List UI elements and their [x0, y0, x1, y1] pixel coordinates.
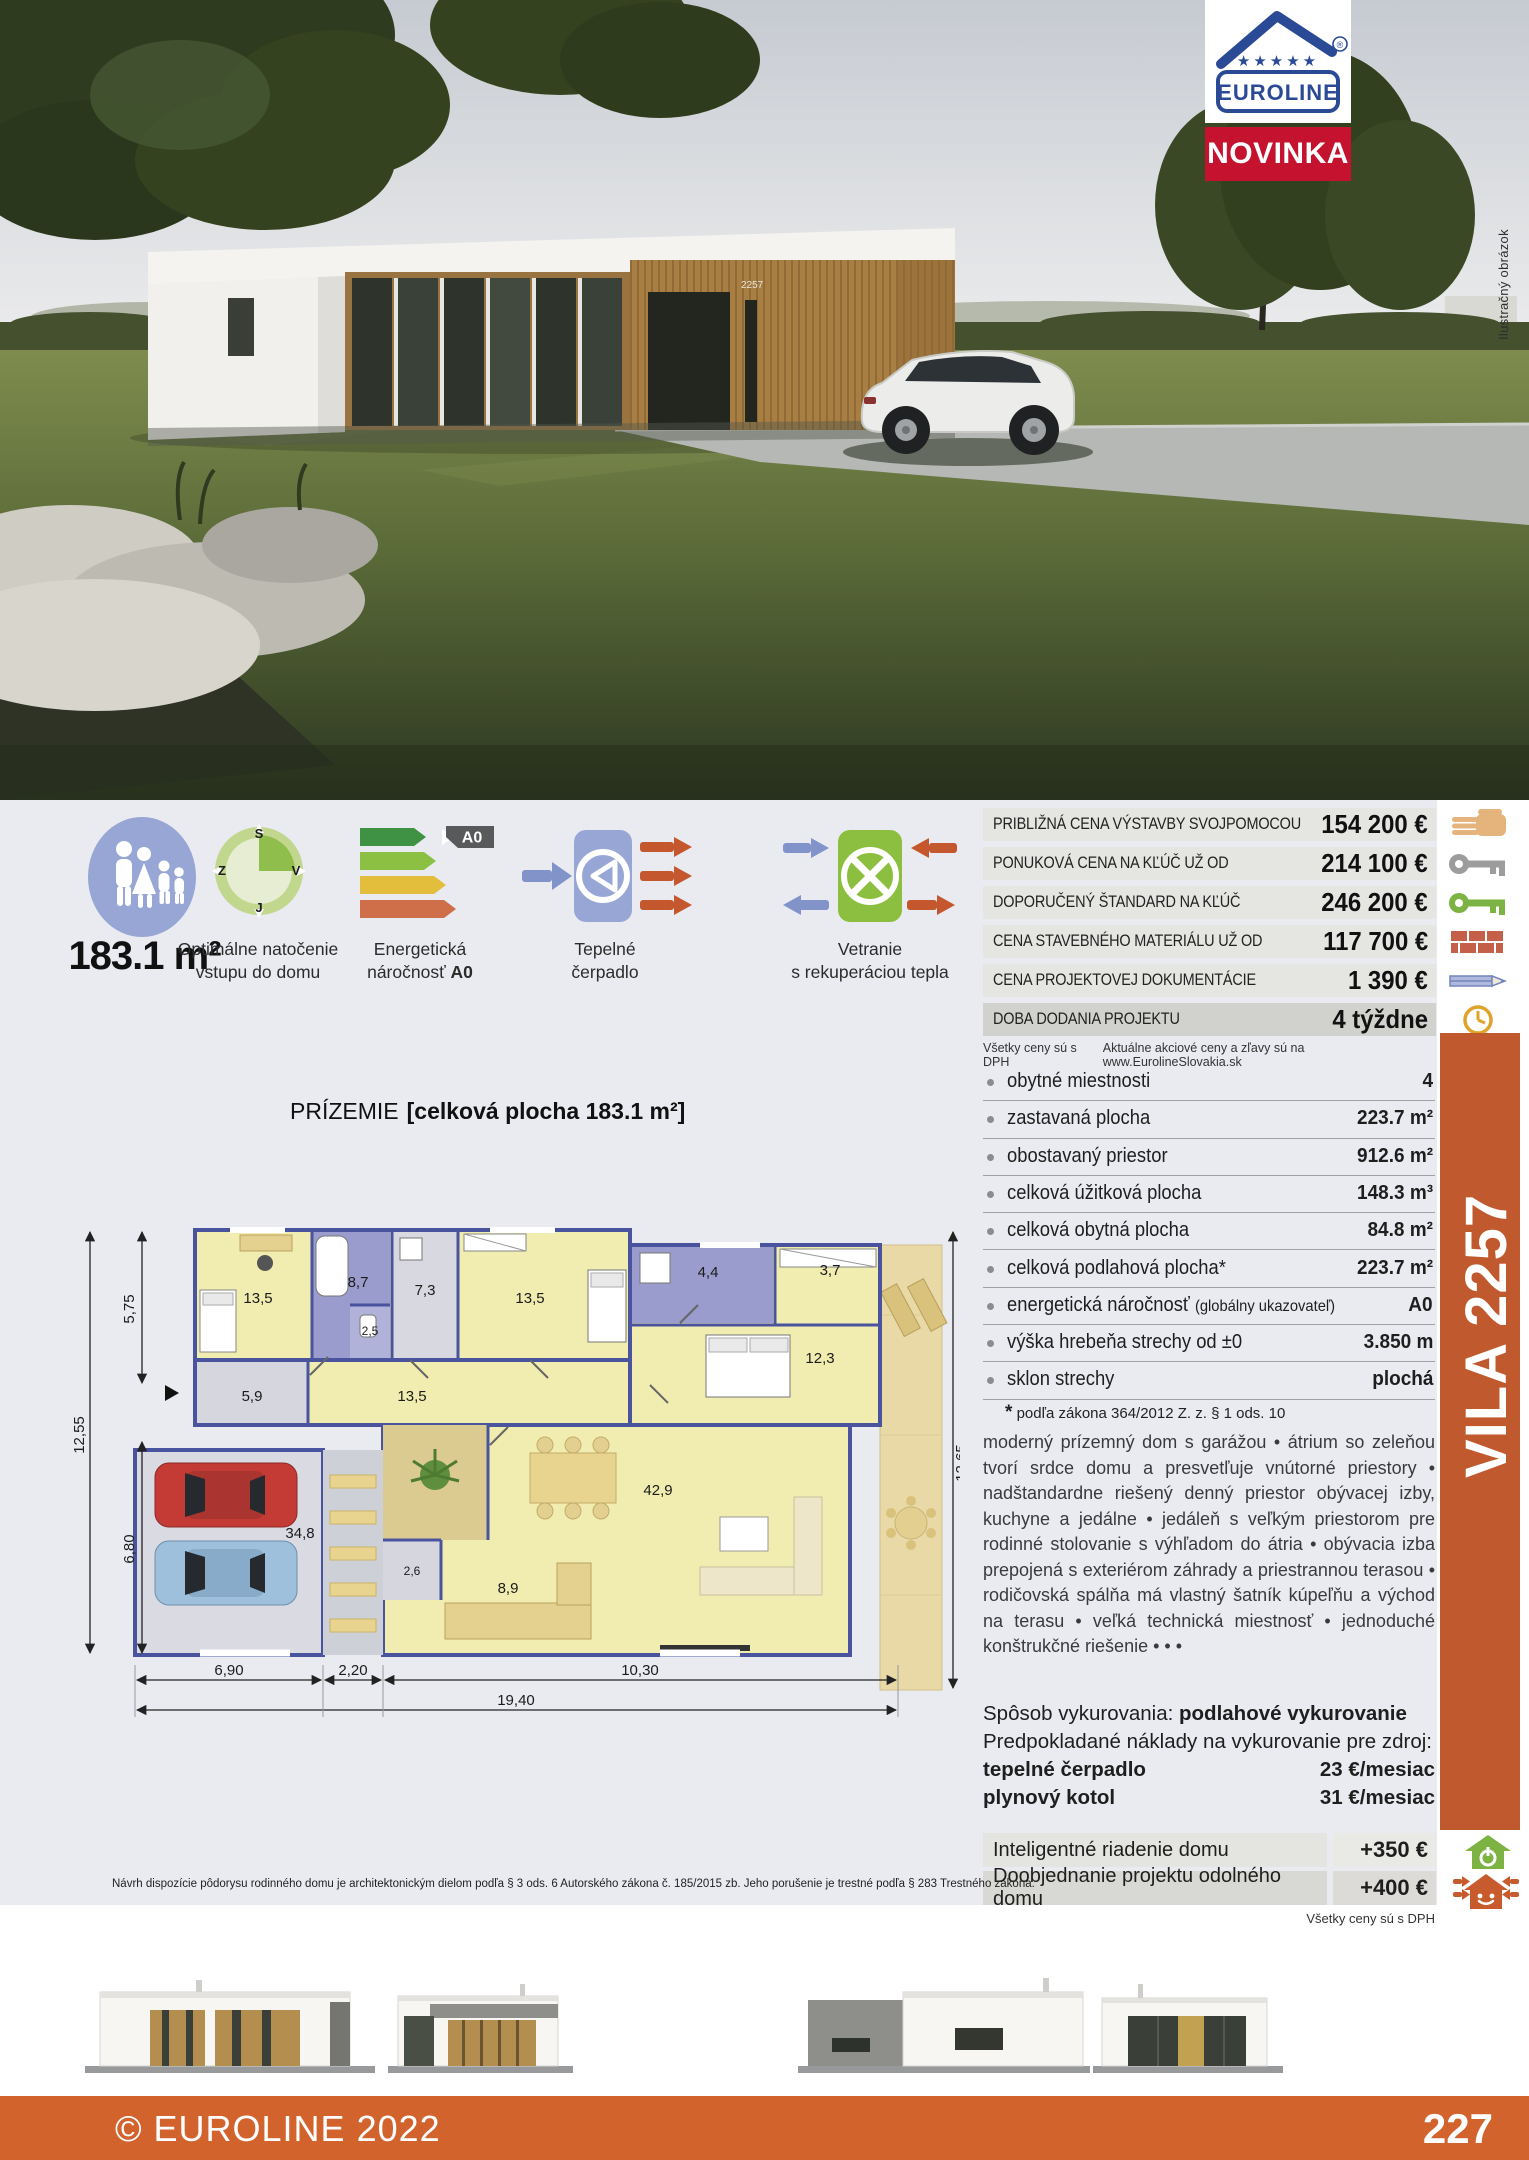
euroline-logo: ★★★★★ ® EUROLINE [1205, 0, 1351, 123]
spec-row: celková úžitková plocha 148.3 m³ [983, 1176, 1435, 1213]
floor-plan: 13,5 8,7 7,3 13,5 2,5 5,9 13,5 4,4 3,7 1… [60, 1135, 960, 1735]
ventilation-label: Vetranie s rekuperáciou tepla [770, 938, 970, 984]
spec-row: celková obytná plocha 84.8 m² [983, 1213, 1435, 1250]
smart-home-icon [1464, 1834, 1512, 1870]
footer-bar: © EUROLINE 2022 227 [0, 2096, 1529, 2160]
pencil-icon [1448, 964, 1508, 998]
dim-label: 19,40 [497, 1692, 535, 1709]
price-row: CENA PROJEKTOVEJ DOKUMENTÁCIE 1 390 € [983, 964, 1436, 997]
terrace [880, 1245, 947, 1690]
bullet-icon [987, 1266, 994, 1273]
room-area-label: 13,5 [515, 1290, 544, 1307]
price-value: 154 200 € [1322, 809, 1428, 840]
orientation-label: Optimálne natočenie vstupu do domu [168, 938, 348, 984]
room-area-label: 4,4 [698, 1264, 719, 1281]
energy-label: Energetická náročnosť A0 [335, 938, 505, 984]
heat-pump-icon [520, 826, 700, 926]
bullet-icon [987, 1154, 994, 1161]
ventilation-icon [775, 826, 965, 926]
registered-icon: ® [1337, 40, 1344, 50]
dim-label: 2,20 [338, 1662, 367, 1679]
room-area-label: 13,5 [243, 1290, 272, 1307]
key-gray-icon [1448, 847, 1508, 881]
hand-icon [1448, 808, 1508, 842]
price-row: PRIBLIŽNÁ CENA VÝSTAVBY SVOJPOMOCOU 154 … [983, 808, 1436, 841]
addon-value: +350 € [1333, 1833, 1436, 1867]
dim-label: 5,75 [121, 1294, 138, 1323]
compass-w: Z [218, 863, 226, 878]
house-number: 2257 [741, 280, 764, 291]
dim-label: 10,30 [621, 1662, 659, 1679]
family-icon [86, 816, 198, 938]
logo-text: EUROLINE [1217, 80, 1339, 105]
spec-label: sklon strechy [1007, 1368, 1114, 1391]
legal-note: Návrh dispozície pôdorysu rodinného domu… [112, 1878, 1002, 1890]
logo-stars: ★★★★★ [1237, 53, 1319, 70]
spec-value: plochá [1372, 1368, 1433, 1391]
spec-value: 223.7 m² [1357, 1257, 1433, 1280]
plan-title: PRÍZEMIE[celková plocha 183.1 m²] [290, 1098, 685, 1125]
dim-label: 6,80 [121, 1534, 138, 1563]
photo-caption: Ilustračný obrázok [1496, 229, 1511, 340]
spec-row: obostavaný priestor 912.6 m² [983, 1139, 1435, 1176]
entrance-arrow [165, 1385, 179, 1401]
elevation-front-b [1093, 1984, 1283, 2073]
bullet-icon [987, 1079, 994, 1086]
price-value: 4 týždne [1332, 1004, 1428, 1035]
spec-label: výška hrebeňa strechy od ±0 [1007, 1331, 1242, 1354]
heating-source-row: plynový kotol 31 €/mesiac [983, 1786, 1435, 1810]
bullet-icon [987, 1340, 994, 1347]
elevation-side-b [798, 1978, 1090, 2073]
spec-label: celková úžitková plocha [1007, 1182, 1201, 1205]
spec-value: 223.7 m² [1357, 1107, 1433, 1130]
spec-label: energetická náročnosť (globálny ukazovat… [1007, 1294, 1335, 1317]
house: 2257 [148, 228, 955, 446]
addon-value: +400 € [1333, 1871, 1436, 1905]
price-label: DOBA DODANIA PROJEKTU [993, 1009, 1180, 1029]
dim-label: 12,55 [71, 1416, 88, 1454]
room-area-label: 2,6 [404, 1564, 421, 1578]
elevation-side-a [85, 1980, 375, 2073]
spec-label: celková podlahová plocha* [1007, 1257, 1226, 1280]
room-area-label: 42,9 [643, 1482, 672, 1499]
compass-icon: S Z V J [212, 824, 306, 918]
price-label: CENA STAVEBNÉHO MATERIÁLU UŽ OD [993, 931, 1262, 951]
spec-label: zastavaná plocha [1007, 1107, 1150, 1130]
spec-row: obytné miestnosti 4 [983, 1064, 1435, 1101]
heating-source-row: tepelné čerpadlo 23 €/mesiac [983, 1758, 1435, 1782]
price-value: 117 700 € [1323, 926, 1428, 957]
novinka-label: NOVINKA [1207, 137, 1349, 171]
heating-source-label: tepelné čerpadlo [983, 1758, 1146, 1782]
elevation-drawings [0, 1958, 1529, 2090]
model-name: VILA 2257 [1453, 1194, 1520, 1478]
bullet-icon [987, 1303, 994, 1310]
key-green-icon [1448, 886, 1508, 920]
spec-value: 4 [1422, 1070, 1433, 1093]
spec-row: celková podlahová plocha* 223.7 m² [983, 1251, 1435, 1288]
spec-row: zastavaná plocha 223.7 m² [983, 1101, 1435, 1138]
energy-class-icon: A0 [360, 826, 495, 922]
spec-row: energetická náročnosť (globálny ukazovat… [983, 1288, 1435, 1325]
heating-source-value: 31 €/mesiac [1320, 1786, 1435, 1810]
spec-label: obostavaný priestor [1007, 1145, 1168, 1168]
elevation-front-a [388, 1984, 573, 2073]
bullet-icon [987, 1191, 994, 1198]
spec-label: obytné miestnosti [1007, 1070, 1150, 1093]
room-area-label: 3,7 [820, 1262, 841, 1279]
dim-label: 6,90 [214, 1662, 243, 1679]
price-row: DOPORUČENÝ ŠTANDARD NA KĽÚČ 246 200 € [983, 886, 1436, 919]
car-blue [155, 1541, 297, 1605]
room-area-label: 5,9 [242, 1388, 263, 1405]
clock-icon [1448, 1003, 1508, 1037]
footer-page-number: 227 [1423, 2105, 1493, 2153]
footer-copyright: © EUROLINE 2022 [115, 2108, 441, 2150]
compass-s: J [255, 900, 262, 915]
bullet-icon [987, 1228, 994, 1235]
dim-label: 12,65 [953, 1444, 960, 1482]
price-value: 246 200 € [1322, 887, 1428, 918]
price-row: PONUKOVÁ CENA NA KĽÚČ UŽ OD 214 100 € [983, 847, 1436, 880]
addon-label: Inteligentné riadenie domu [983, 1833, 1327, 1867]
addon-vat-note: Všetky ceny sú s DPH [983, 1911, 1435, 1926]
room-area-label: 7,3 [415, 1282, 436, 1299]
price-label: DOPORUČENÝ ŠTANDARD NA KĽÚČ [993, 892, 1240, 912]
price-value: 214 100 € [1322, 848, 1428, 879]
heating-source-label: plynový kotol [983, 1786, 1115, 1810]
spec-value: 3.850 m [1363, 1331, 1433, 1354]
bullet-icon [987, 1116, 994, 1123]
spec-row: výška hrebeňa strechy od ±0 3.850 m [983, 1325, 1435, 1362]
spec-value: 912.6 m² [1357, 1145, 1433, 1168]
bricks-icon [1448, 925, 1508, 959]
room-area-label: 8,7 [348, 1274, 369, 1291]
spec-value: A0 [1409, 1294, 1433, 1317]
price-label: PRIBLIŽNÁ CENA VÝSTAVBY SVOJPOMOCOU [993, 814, 1301, 834]
novinka-badge: NOVINKA [1205, 127, 1351, 181]
compass-n: S [255, 826, 264, 841]
room-area-label: 2,5 [362, 1324, 379, 1338]
resilient-home-icon [1452, 1872, 1520, 1910]
price-label: CENA PROJEKTOVEJ DOKUMENTÁCIE [993, 970, 1256, 990]
heat-pump-label: Tepelné čerpadlo [520, 938, 690, 984]
room-area-label: 34,8 [285, 1525, 314, 1542]
energy-badge: A0 [462, 830, 483, 847]
price-row: CENA STAVEBNÉHO MATERIÁLU UŽ OD 117 700 … [983, 925, 1436, 958]
spec-footnote: * podľa zákona 364/2012 Z. z. § 1 ods. 1… [1005, 1402, 1285, 1424]
price-label: PONUKOVÁ CENA NA KĽÚČ UŽ OD [993, 853, 1229, 873]
heating-source-value: 23 €/mesiac [1320, 1758, 1435, 1782]
catalog-page: 2257 [0, 0, 1529, 2160]
heating-method: Spôsob vykurovania: podlahové vykurovani… [983, 1702, 1435, 1726]
room-area-label: 13,5 [397, 1388, 426, 1405]
room-area-label: 12,3 [805, 1350, 834, 1367]
price-value: 1 390 € [1348, 965, 1428, 996]
spec-value: 148.3 m³ [1357, 1182, 1433, 1205]
price-row: DOBA DODANIA PROJEKTU 4 týždne [983, 1003, 1436, 1036]
bullet-icon [987, 1377, 994, 1384]
heating-costs-label: Predpokladané náklady na vykurovanie pre… [983, 1730, 1435, 1754]
spec-row: sklon strechy plochá [983, 1362, 1435, 1399]
car-red [155, 1463, 297, 1527]
spec-label: celková obytná plocha [1007, 1219, 1189, 1242]
compass-e: V [292, 863, 301, 878]
description: moderný prízemný dom s garážou • átrium … [983, 1430, 1435, 1660]
spec-value: 84.8 m² [1368, 1219, 1433, 1242]
room-area-label: 8,9 [498, 1580, 519, 1597]
